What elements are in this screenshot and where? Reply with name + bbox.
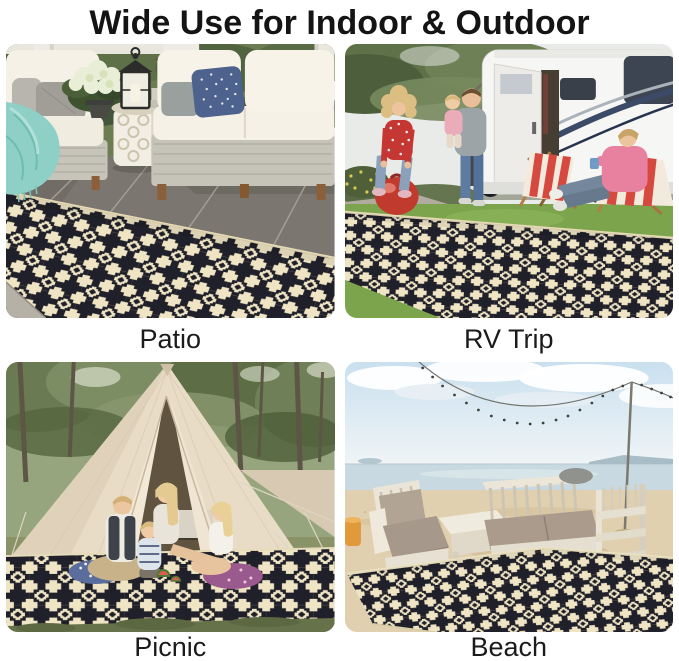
drum-stool	[345, 517, 361, 546]
watermelon-slice	[157, 570, 169, 576]
beach-scene	[345, 362, 674, 632]
toddler-figure	[444, 95, 462, 149]
picnic-photo	[6, 362, 335, 632]
scene-card-rv-trip: RV Trip	[345, 44, 674, 362]
rv-trip-scene	[345, 44, 674, 318]
scene-card-picnic: Picnic	[6, 362, 335, 661]
scene-card-patio: Patio	[6, 44, 335, 362]
product-infographic: Wide Use for Indoor & Outdoor	[0, 0, 679, 661]
page-title: Wide Use for Indoor & Outdoor	[0, 0, 679, 44]
patio-caption: Patio	[6, 318, 335, 362]
patio-photo	[6, 44, 335, 318]
rv-trip-photo	[345, 44, 674, 318]
patio-scene	[6, 44, 335, 318]
rv-trip-caption: RV Trip	[345, 318, 674, 362]
navy-pillow	[191, 65, 245, 118]
scene-card-beach: Beach	[345, 362, 674, 661]
beach-photo	[345, 362, 674, 632]
picnic-scene	[6, 362, 335, 632]
picnic-caption: Picnic	[6, 632, 335, 661]
scene-grid: Patio	[0, 44, 679, 661]
rug	[6, 548, 335, 628]
gray-pillow	[559, 468, 593, 484]
beach-caption: Beach	[345, 632, 674, 661]
